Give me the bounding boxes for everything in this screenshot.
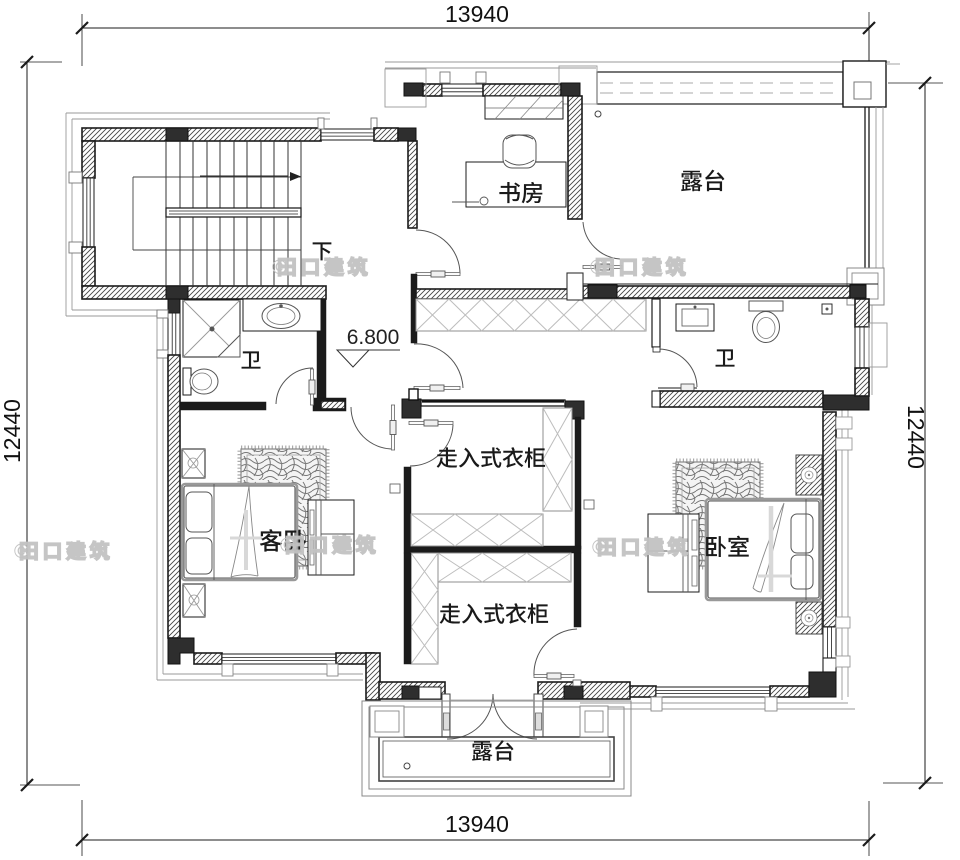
svg-text:12440: 12440 [903, 405, 929, 469]
svg-text:12440: 12440 [0, 399, 25, 463]
svg-text:13940: 13940 [445, 811, 509, 837]
svg-text:13940: 13940 [445, 1, 509, 27]
svg-text:6.800: 6.800 [347, 326, 400, 349]
